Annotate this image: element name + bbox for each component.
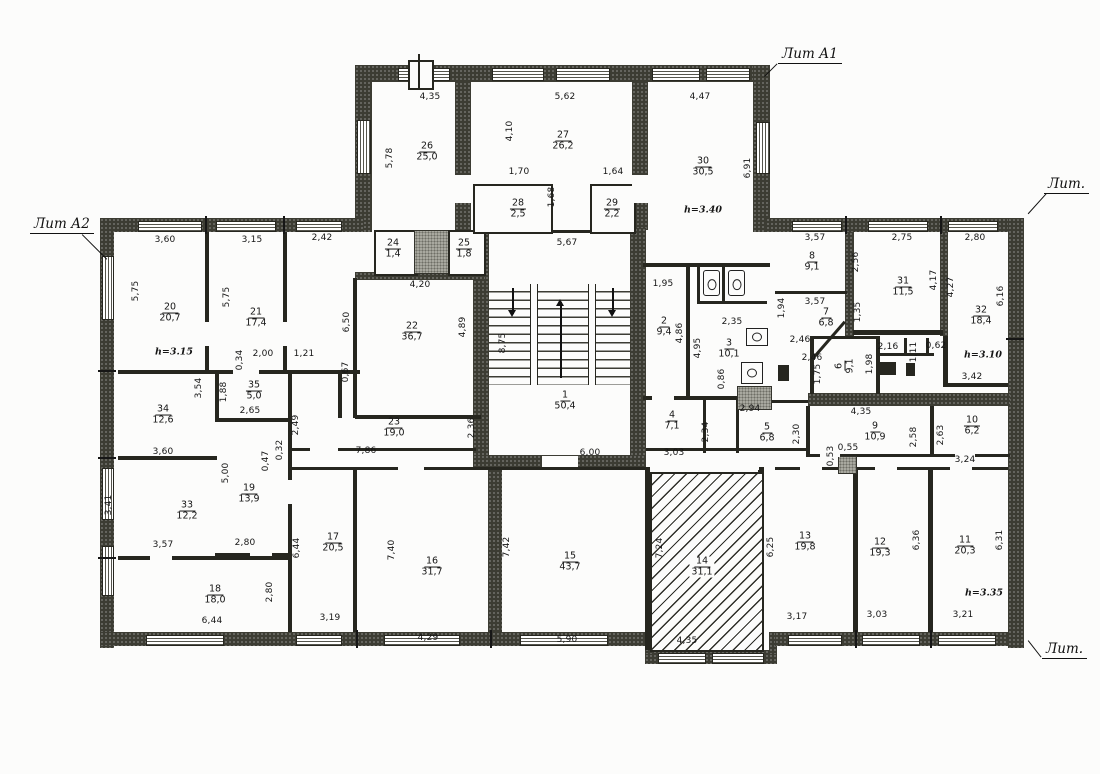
dim-label: 7,42 xyxy=(502,537,512,558)
room-label-11: 1120,3 xyxy=(954,536,975,557)
dim-label: 3,19 xyxy=(320,613,341,623)
wall xyxy=(806,406,810,456)
dim-label: 2,34 xyxy=(701,422,711,443)
dim-label: 2,16 xyxy=(878,342,899,352)
wall xyxy=(353,278,357,418)
lit-a2-label: Лит А2 xyxy=(30,216,94,234)
toilet-icon xyxy=(728,270,745,296)
dim-label: 2,49 xyxy=(291,415,301,436)
chimney xyxy=(408,60,434,90)
window xyxy=(556,68,610,81)
dim-label: 2,80 xyxy=(235,538,256,548)
dim-label: 5,90 xyxy=(557,635,578,645)
dim-label: 1,21 xyxy=(294,349,315,359)
dim-label: 0,67 xyxy=(341,362,351,383)
dim-label: 6,00 xyxy=(580,448,601,458)
dim-tick xyxy=(855,630,857,648)
dim-label: 2,80 xyxy=(965,233,986,243)
wall xyxy=(283,232,287,374)
dim-label: 4,10 xyxy=(505,121,515,142)
dim-label: 2,94 xyxy=(740,404,761,414)
dim-label: 1,68 xyxy=(547,187,557,208)
window xyxy=(492,68,544,81)
dim-label: 2,42 xyxy=(312,233,333,243)
room-label-27: 2726,2 xyxy=(552,131,573,152)
dim-label: 4,86 xyxy=(675,323,685,344)
dim-label: 5,75 xyxy=(131,281,141,302)
dim-label: 6,25 xyxy=(766,537,776,558)
wall xyxy=(686,263,690,400)
room-label-14: 1431,1 xyxy=(689,557,714,578)
dim-label: 3,41 xyxy=(104,495,114,516)
wall xyxy=(118,370,290,374)
room-label-30: 3030,5 xyxy=(692,157,713,178)
dim-label: 6,44 xyxy=(202,616,223,626)
door-opening xyxy=(310,448,338,451)
stair-down-arrow-icon xyxy=(512,288,514,314)
room-label-22: 2236,7 xyxy=(401,322,422,343)
dim-label: 5,62 xyxy=(555,92,576,102)
dim-tick xyxy=(356,630,358,648)
room-label-2: 29,4 xyxy=(656,317,671,338)
dim-label: 2,30 xyxy=(792,424,802,445)
dim-label: 6,31 xyxy=(995,530,1005,551)
dim-label: 3,60 xyxy=(155,235,176,245)
dim-tick xyxy=(940,216,942,234)
door-opening xyxy=(398,467,424,470)
room-label-5: 56,8 xyxy=(759,423,774,444)
dim-label: 4,29 xyxy=(418,633,439,643)
dim-label: 3,54 xyxy=(194,378,204,399)
room-label-35: 355,0 xyxy=(246,381,262,402)
door-opening xyxy=(800,467,822,470)
door-opening xyxy=(205,322,209,346)
room-label-29: 292,2 xyxy=(604,199,620,220)
dim-label: 0,62 xyxy=(926,341,947,351)
stair-down-arrow-icon xyxy=(612,288,614,314)
wall xyxy=(722,265,725,303)
height-mark: h=3.40 xyxy=(684,205,722,216)
dim-label: 5,67 xyxy=(557,238,578,248)
dim-tick xyxy=(930,630,932,648)
duct-box xyxy=(838,456,857,474)
dim-label: 2,58 xyxy=(909,427,919,448)
dim-tick xyxy=(98,457,116,459)
dim-label: 4,27 xyxy=(946,277,956,298)
vent-shaft xyxy=(906,363,915,376)
window xyxy=(938,635,996,646)
door-opening xyxy=(950,467,972,470)
wall xyxy=(1008,218,1024,648)
dim-label: 2,63 xyxy=(936,425,946,446)
dim-tick xyxy=(205,216,207,234)
room-label-12: 1219,3 xyxy=(869,538,890,559)
stair-up-arrow-icon xyxy=(560,302,562,378)
dim-label: 4,47 xyxy=(690,92,711,102)
dim-label: 6,36 xyxy=(912,530,922,551)
dim-label: 3,60 xyxy=(153,447,174,457)
floor-plan: Лит А1 Лит А2 Лит. Лит. 4,35 5,62 4,47 5… xyxy=(0,0,1100,774)
door-opening xyxy=(652,396,674,400)
vent-shaft xyxy=(880,362,896,375)
dim-label: 1,70 xyxy=(509,167,530,177)
dim-label: 1,94 xyxy=(777,298,787,319)
dim-label: 1,35 xyxy=(853,302,863,323)
door-opening xyxy=(632,175,648,203)
dim-label: 1,98 xyxy=(865,354,875,375)
door-opening xyxy=(288,480,292,504)
wall xyxy=(455,82,471,230)
room-label-3: 310,1 xyxy=(718,339,739,360)
dim-label: 3,21 xyxy=(953,610,974,620)
dim-label: 2,75 xyxy=(892,233,913,243)
dim-label: 2,36 xyxy=(467,418,477,439)
wall xyxy=(288,467,648,470)
room-label-7: 76,8 xyxy=(818,308,833,329)
dim-label: 2,35 xyxy=(722,317,743,327)
dim-label: 0,86 xyxy=(717,369,727,390)
wall xyxy=(205,232,209,372)
dim-label: 0,32 xyxy=(275,440,285,461)
window xyxy=(948,221,998,232)
dim-label: 3,57 xyxy=(153,540,174,550)
room-label-32: 3218,4 xyxy=(970,306,991,327)
wall xyxy=(353,467,357,632)
dim-label: 3,57 xyxy=(805,297,826,307)
door-opening xyxy=(283,322,287,346)
dim-label: 6,91 xyxy=(743,158,753,179)
lit-a1-label: Лит А1 xyxy=(778,46,842,64)
wall xyxy=(928,467,933,632)
dim-label: 3,57 xyxy=(805,233,826,243)
dim-label: 3,03 xyxy=(867,610,888,620)
door-opening xyxy=(150,556,172,560)
window xyxy=(756,122,770,174)
stair-rail xyxy=(588,284,596,385)
window xyxy=(138,221,202,232)
dim-label: 2,00 xyxy=(253,349,274,359)
dim-label: 2,65 xyxy=(240,406,261,416)
room-label-17: 1720,5 xyxy=(322,533,343,554)
sink-icon xyxy=(746,328,768,346)
wall xyxy=(215,418,292,422)
stair-rail xyxy=(530,284,538,385)
dim-label: 7,24 xyxy=(655,538,665,559)
dim-label: 4,95 xyxy=(693,338,703,359)
leader-line xyxy=(1027,193,1046,214)
dim-label: 3,24 xyxy=(955,455,976,465)
room-label-19: 1913,9 xyxy=(238,484,259,505)
dim-label: 2,46 xyxy=(802,353,823,363)
wall xyxy=(775,291,847,294)
room-label-16: 1631,7 xyxy=(421,557,442,578)
dim-label: 2,80 xyxy=(265,582,275,603)
room-label-9: 910,9 xyxy=(864,422,885,443)
door-opening xyxy=(250,553,272,556)
dim-tick xyxy=(845,216,847,234)
dim-label: 5,75 xyxy=(222,287,232,308)
window xyxy=(862,635,920,646)
dim-label: 3,42 xyxy=(962,372,983,382)
wall xyxy=(697,301,767,304)
shaft xyxy=(414,230,450,274)
room-label-34: 3412,6 xyxy=(152,405,173,426)
dim-label: 7,40 xyxy=(387,540,397,561)
dim-label: 4,20 xyxy=(410,280,431,290)
wall xyxy=(853,330,943,335)
height-mark: h=3.10 xyxy=(964,350,1002,361)
wall xyxy=(118,556,290,560)
wall xyxy=(697,265,700,303)
height-mark: h=3.35 xyxy=(965,588,1003,599)
door-opening xyxy=(233,370,259,374)
dim-label: 0,53 xyxy=(826,446,836,467)
room-label-4: 47,1 xyxy=(664,411,679,432)
window xyxy=(146,635,224,646)
room-label-1: 150,4 xyxy=(554,391,575,412)
door-opening xyxy=(455,175,471,203)
window xyxy=(712,653,764,664)
window xyxy=(296,221,342,232)
wall xyxy=(810,336,878,339)
dim-label: 1,64 xyxy=(603,167,624,177)
window xyxy=(658,653,706,664)
dim-tick xyxy=(490,630,492,648)
room-label-20: 2020,7 xyxy=(159,303,180,324)
lit-bottom-right-label: Лит. xyxy=(1042,641,1087,659)
chimney-line xyxy=(418,54,420,90)
dim-tick xyxy=(98,557,116,559)
toilet-icon xyxy=(703,270,720,296)
leader-line xyxy=(1027,640,1041,657)
dim-label: 1,95 xyxy=(653,279,674,289)
room-label-10: 106,2 xyxy=(964,416,980,437)
room-label-25: 251,8 xyxy=(456,239,472,260)
room-label-31: 3111,5 xyxy=(892,277,913,298)
room-label-33: 3312,2 xyxy=(176,501,197,522)
height-mark: h=3.15 xyxy=(155,347,193,358)
dim-label: 4,17 xyxy=(929,270,939,291)
dim-label: 4,89 xyxy=(458,317,468,338)
vent-shaft xyxy=(778,365,789,381)
window xyxy=(788,635,842,646)
room-label-23: 2319,0 xyxy=(383,418,404,439)
wall xyxy=(355,415,481,419)
dim-label: 5,78 xyxy=(385,148,395,169)
wall xyxy=(488,467,502,632)
window xyxy=(792,221,842,232)
wall xyxy=(808,393,1010,406)
window xyxy=(706,68,750,81)
dim-label: 6,16 xyxy=(996,286,1006,307)
room-label-13: 1319,8 xyxy=(794,532,815,553)
window xyxy=(868,221,928,232)
dim-tick xyxy=(98,370,116,372)
door-opening xyxy=(542,456,578,467)
wall xyxy=(930,406,934,456)
room-label-8: 89,1 xyxy=(804,252,819,273)
dim-label: 6,44 xyxy=(292,538,302,559)
room-label-21: 2117,4 xyxy=(245,308,266,329)
dim-label: 1,88 xyxy=(219,382,229,403)
dim-label: 4,35 xyxy=(677,636,698,646)
dim-label: 7,86 xyxy=(356,446,377,456)
window xyxy=(102,256,114,320)
dim-label: 3,03 xyxy=(664,448,685,458)
room-label-15: 1543,7 xyxy=(559,552,580,573)
window xyxy=(357,120,371,174)
dim-label: 6,50 xyxy=(342,312,352,333)
wall xyxy=(853,467,858,632)
dim-label: 4,35 xyxy=(420,92,441,102)
room-label-26: 2625,0 xyxy=(416,142,437,163)
window xyxy=(216,221,276,232)
door-opening xyxy=(735,467,759,470)
dim-label: 8,75 xyxy=(498,333,508,354)
room-label-18: 1818,0 xyxy=(204,585,225,606)
dim-label: 0,47 xyxy=(261,451,271,472)
wall xyxy=(643,263,770,267)
lit-top-right-label: Лит. xyxy=(1044,176,1089,194)
dim-label: 1,11 xyxy=(909,342,919,363)
window xyxy=(296,635,342,646)
room-label-24: 241,4 xyxy=(385,239,401,260)
dim-tick xyxy=(283,216,285,234)
dim-label: 1,75 xyxy=(813,364,823,385)
dim-tick xyxy=(1006,338,1024,340)
dim-label: 2,46 xyxy=(790,335,811,345)
wall xyxy=(904,338,907,355)
wall xyxy=(943,383,1008,387)
dim-label: 5,00 xyxy=(221,463,231,484)
window xyxy=(102,546,114,596)
dim-label: 3,15 xyxy=(242,235,263,245)
dim-label: 4,35 xyxy=(851,407,872,417)
sink-icon xyxy=(741,362,763,384)
dim-label: 3,17 xyxy=(787,612,808,622)
room-label-28: 282,5 xyxy=(510,199,526,220)
dim-label: 0,34 xyxy=(235,350,245,371)
door-opening xyxy=(875,467,897,470)
window xyxy=(652,68,700,81)
room-label-6: 69,1 xyxy=(835,358,856,373)
dim-label: 0,55 xyxy=(838,443,859,453)
dim-label: 2,56 xyxy=(851,252,861,273)
